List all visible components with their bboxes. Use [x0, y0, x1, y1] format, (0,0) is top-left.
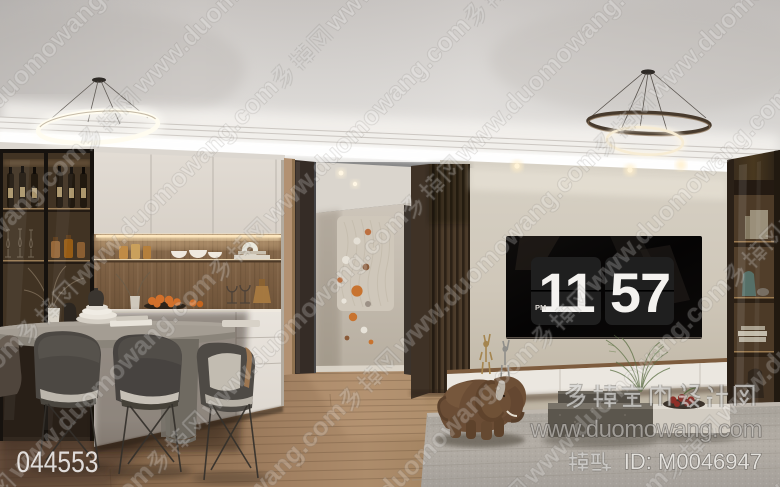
svg-text:044553: 044553: [16, 445, 98, 479]
svg-text:ID: M0046947: ID: M0046947: [624, 449, 762, 474]
svg-text:PM: PM: [535, 303, 546, 312]
svg-text:www.duomowang.com: www.duomowang.com: [529, 416, 762, 443]
